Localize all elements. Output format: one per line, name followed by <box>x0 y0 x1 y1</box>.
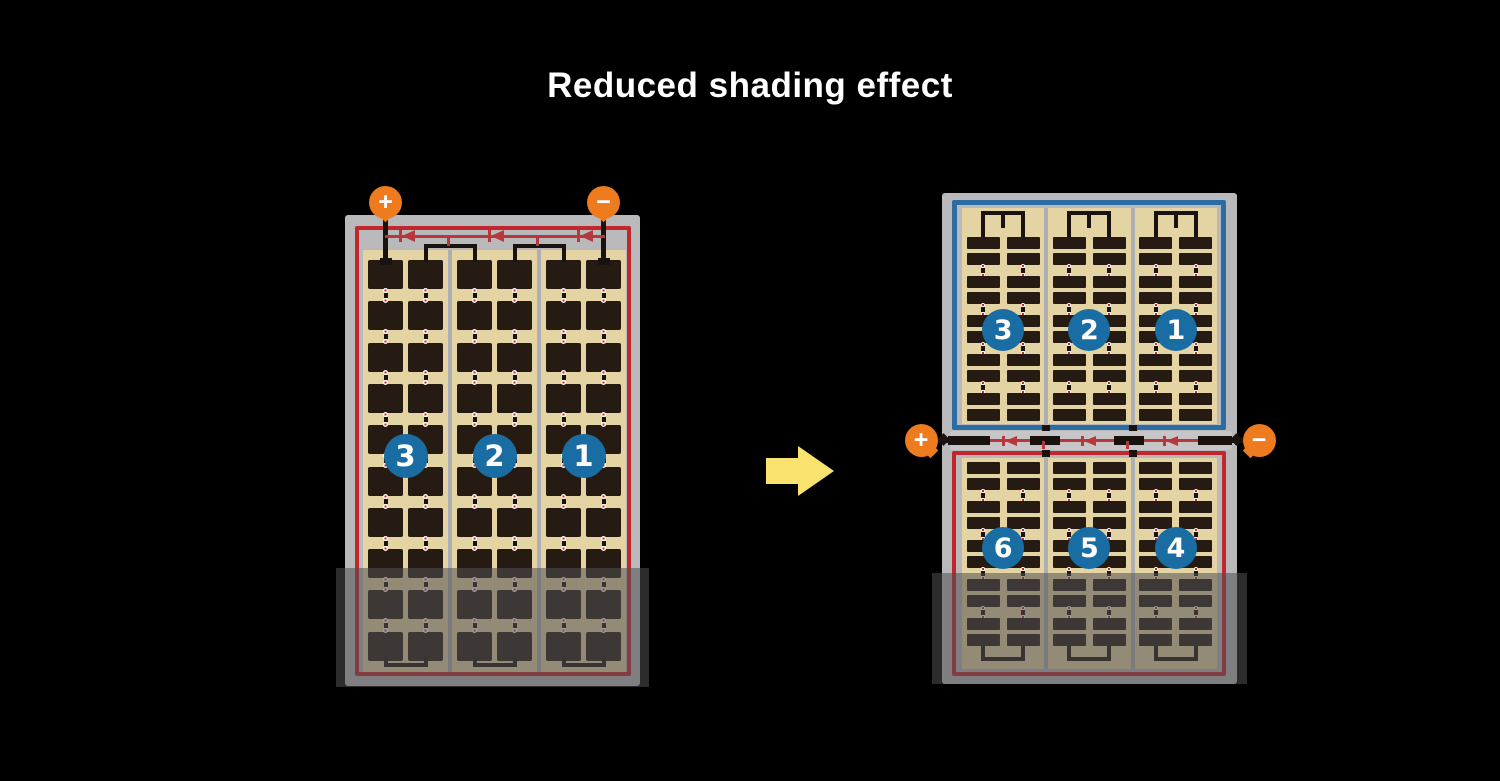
solder-bar <box>602 541 606 546</box>
string-jumper-leg <box>473 244 477 262</box>
solar-cell-half <box>967 276 1000 288</box>
solder-dot <box>601 422 606 427</box>
string-jumper-leg <box>981 211 985 237</box>
solar-cell <box>457 301 492 330</box>
solder-bar <box>473 417 477 422</box>
solar-cell <box>497 384 532 413</box>
solder-dot <box>423 546 428 551</box>
solder-bar <box>602 293 606 298</box>
solder-bar <box>384 293 388 298</box>
solar-cell-half <box>1139 276 1172 288</box>
solder-bar <box>562 293 566 298</box>
string-jumper-leg <box>562 244 566 262</box>
string-jumper-leg <box>1107 211 1111 237</box>
solar-cell <box>408 508 443 537</box>
solder-dot <box>512 546 517 551</box>
solder-bar <box>473 541 477 546</box>
solar-cell <box>497 508 532 537</box>
solar-cell <box>408 260 443 289</box>
string-number-badge: 1 <box>1155 309 1197 351</box>
string-number-badge: 2 <box>473 434 517 478</box>
solder-dot <box>561 339 566 344</box>
cell-connector <box>561 288 567 303</box>
solar-cell-half <box>1007 393 1040 405</box>
solder-dot <box>423 504 428 509</box>
terminal-negative: − <box>587 186 620 219</box>
solder-dot <box>601 504 606 509</box>
solar-cell-half <box>1179 501 1212 513</box>
shading-overlay <box>932 573 1247 684</box>
solar-cell-half <box>1139 237 1172 249</box>
cell-connector <box>383 329 389 344</box>
solar-cell-half <box>1093 393 1126 405</box>
solder-dot <box>561 298 566 303</box>
solder-dot <box>561 504 566 509</box>
solar-cell-half <box>1053 276 1086 288</box>
solder-dot <box>472 504 477 509</box>
terminal-lead-pad <box>598 258 610 265</box>
solar-cell <box>586 301 621 330</box>
solar-cell-half <box>1093 462 1126 474</box>
solder-dot <box>512 339 517 344</box>
diode-triangle <box>1005 436 1017 446</box>
solar-cell-half <box>1179 462 1212 474</box>
junction-connector-bar <box>948 436 990 445</box>
solder-dot <box>423 422 428 427</box>
solar-cell <box>408 343 443 372</box>
cell-connector <box>601 370 607 385</box>
solder-bar <box>384 541 388 546</box>
cell-connector <box>512 370 518 385</box>
solder-bar <box>562 417 566 422</box>
diode-tap-line <box>1042 441 1045 449</box>
solar-cell-half <box>1139 501 1172 513</box>
solar-cell <box>497 260 532 289</box>
solder-dot <box>423 298 428 303</box>
cell-connector <box>601 536 607 551</box>
bypass-diode-icon <box>399 230 415 242</box>
cell-connector <box>383 536 389 551</box>
cell-connector <box>601 494 607 509</box>
cell-connector <box>423 288 429 303</box>
solar-cell <box>368 343 403 372</box>
cell-connector <box>423 494 429 509</box>
solder-bar <box>384 417 388 422</box>
string-divider <box>1044 208 1048 424</box>
string-jumper-leg <box>1067 211 1071 237</box>
cell-connector <box>512 412 518 427</box>
solder-dot <box>512 298 517 303</box>
solar-cell-half <box>1093 501 1126 513</box>
cell-connector <box>383 412 389 427</box>
solder-dot <box>472 546 477 551</box>
diode-tap-line <box>447 236 450 246</box>
solar-cell <box>546 508 581 537</box>
diode-tap-line <box>536 236 539 246</box>
solar-cell <box>497 343 532 372</box>
cell-connector <box>423 370 429 385</box>
solar-cell-half <box>1139 409 1172 421</box>
cell-connector <box>472 329 478 344</box>
solar-cell-half <box>1007 276 1040 288</box>
solar-cell-half <box>1093 354 1126 366</box>
solar-cell-half <box>1179 276 1212 288</box>
solar-cell <box>457 260 492 289</box>
solder-bar <box>473 293 477 298</box>
solar-cell-half <box>967 237 1000 249</box>
diode-triangle <box>1166 436 1178 446</box>
string-jumper-bar <box>513 244 566 248</box>
string-number-badge: 6 <box>982 527 1024 569</box>
cell-connector <box>472 370 478 385</box>
shading-overlay <box>336 568 649 687</box>
solder-dot <box>383 504 388 509</box>
solder-dot <box>601 339 606 344</box>
string-jumper-leg <box>1154 211 1158 237</box>
terminal-label: + <box>369 186 402 219</box>
solar-cell <box>368 508 403 537</box>
solder-dot <box>383 422 388 427</box>
string-jumper-leg <box>1194 211 1198 237</box>
string-jumper-stub <box>1174 215 1178 228</box>
arrow-body <box>766 458 798 484</box>
diode-triangle <box>402 230 415 242</box>
solar-cell <box>457 343 492 372</box>
string-number-badge: 4 <box>1155 527 1197 569</box>
solder-bar <box>602 417 606 422</box>
cell-connector <box>512 329 518 344</box>
cell-connector <box>561 494 567 509</box>
arrow-head <box>798 446 834 496</box>
solar-cell <box>457 384 492 413</box>
diode-triangle <box>580 230 593 242</box>
string-jumper-stub <box>1087 215 1091 228</box>
terminal-label: − <box>587 186 620 219</box>
solder-bar <box>424 541 428 546</box>
string-jumper-leg <box>513 244 517 262</box>
string-number-badge: 3 <box>384 434 428 478</box>
solar-cell-half <box>1007 237 1040 249</box>
solar-cell-half <box>1093 409 1126 421</box>
cell-connector <box>472 494 478 509</box>
junction-connector-bar <box>1114 436 1144 445</box>
cell-connector <box>601 288 607 303</box>
solder-dot <box>383 546 388 551</box>
string-jumper-bar <box>424 244 477 248</box>
solder-bar <box>424 293 428 298</box>
solar-cell-half <box>1053 354 1086 366</box>
junction-connector-bar <box>1198 436 1232 445</box>
terminal-label: − <box>1243 424 1276 457</box>
bypass-diode-icon <box>1163 436 1178 446</box>
solar-cell <box>586 343 621 372</box>
solar-cell-half <box>1093 276 1126 288</box>
solar-cell <box>408 301 443 330</box>
cell-connector <box>561 370 567 385</box>
solar-cell-half <box>1007 354 1040 366</box>
solar-cell-half <box>1139 462 1172 474</box>
solar-cell <box>368 301 403 330</box>
solder-dot <box>383 380 388 385</box>
solar-cell <box>497 301 532 330</box>
solar-cell-half <box>1139 393 1172 405</box>
cell-connector <box>383 494 389 509</box>
terminal-positive: + <box>369 186 402 219</box>
solar-cell-half <box>967 501 1000 513</box>
terminal-positive: + <box>905 424 938 457</box>
solar-cell <box>586 508 621 537</box>
solder-dot <box>472 380 477 385</box>
string-number-badge: 3 <box>982 309 1024 351</box>
solder-bar <box>513 541 517 546</box>
solar-cell-half <box>967 462 1000 474</box>
cell-connector <box>472 288 478 303</box>
solder-dot <box>472 422 477 427</box>
diode-triangle <box>491 230 504 242</box>
solar-cell <box>457 508 492 537</box>
cell-connector <box>423 536 429 551</box>
diagram-canvas: Reduced shading effect 321+− 321654+− <box>0 0 1500 781</box>
solar-cell <box>546 384 581 413</box>
cell-connector <box>601 329 607 344</box>
solder-dot <box>472 339 477 344</box>
terminal-lead-pad <box>380 258 392 265</box>
solar-cell-half <box>1007 462 1040 474</box>
cell-connector <box>561 412 567 427</box>
solder-bar <box>513 293 517 298</box>
solar-cell-half <box>967 409 1000 421</box>
cell-connector <box>561 536 567 551</box>
diode-triangle <box>1084 436 1096 446</box>
bypass-diode-icon <box>488 230 504 242</box>
junction-connector-bar <box>1030 436 1060 445</box>
solder-dot <box>472 298 477 303</box>
solar-cell-half <box>1179 409 1212 421</box>
page-title: Reduced shading effect <box>0 66 1500 106</box>
string-jumper-leg <box>1021 211 1025 237</box>
cell-connector <box>512 494 518 509</box>
solder-dot <box>383 298 388 303</box>
solder-dot <box>383 339 388 344</box>
terminal-negative: − <box>1243 424 1276 457</box>
solder-bar <box>562 541 566 546</box>
cell-connector <box>383 370 389 385</box>
cell-connector <box>472 412 478 427</box>
solder-dot <box>601 298 606 303</box>
string-jumper-stub <box>1001 215 1005 228</box>
solar-cell-half <box>1053 409 1086 421</box>
solar-cell <box>408 384 443 413</box>
cell-connector <box>383 288 389 303</box>
cell-connector <box>472 536 478 551</box>
solar-cell-half <box>1179 237 1212 249</box>
solar-cell <box>546 343 581 372</box>
solar-cell-half <box>1139 354 1172 366</box>
solder-dot <box>512 380 517 385</box>
solder-dot <box>512 504 517 509</box>
solder-dot <box>423 339 428 344</box>
solder-dot <box>561 546 566 551</box>
solder-dot <box>601 546 606 551</box>
cell-connector <box>423 329 429 344</box>
cell-connector <box>512 536 518 551</box>
solder-dot <box>601 380 606 385</box>
cell-connector <box>561 329 567 344</box>
solar-cell <box>546 260 581 289</box>
solar-cell-half <box>1179 354 1212 366</box>
solar-cell <box>586 384 621 413</box>
cell-connector <box>423 412 429 427</box>
solar-cell-half <box>1053 501 1086 513</box>
solar-cell <box>368 384 403 413</box>
solar-cell-half <box>1007 409 1040 421</box>
solar-cell-half <box>967 354 1000 366</box>
solder-dot <box>561 422 566 427</box>
string-divider <box>1131 208 1135 424</box>
solar-cell-half <box>1053 237 1086 249</box>
string-number-badge: 1 <box>562 434 606 478</box>
cell-connector <box>601 412 607 427</box>
string-jumper-leg <box>424 244 428 262</box>
bypass-diode-icon <box>577 230 593 242</box>
solar-cell-half <box>1007 501 1040 513</box>
diode-tap-line <box>1126 441 1129 449</box>
bypass-diode-icon <box>1081 436 1096 446</box>
solar-cell <box>546 301 581 330</box>
solar-cell-half <box>1053 393 1086 405</box>
terminal-label: + <box>905 424 938 457</box>
solder-dot <box>512 422 517 427</box>
solder-bar <box>424 417 428 422</box>
solar-cell-half <box>1093 237 1126 249</box>
solar-cell-half <box>1179 393 1212 405</box>
solder-dot <box>561 380 566 385</box>
cell-connector <box>512 288 518 303</box>
solar-cell-half <box>967 393 1000 405</box>
solar-cell-half <box>1053 462 1086 474</box>
solder-bar <box>513 417 517 422</box>
bypass-diode-icon <box>1002 436 1017 446</box>
solder-dot <box>423 380 428 385</box>
